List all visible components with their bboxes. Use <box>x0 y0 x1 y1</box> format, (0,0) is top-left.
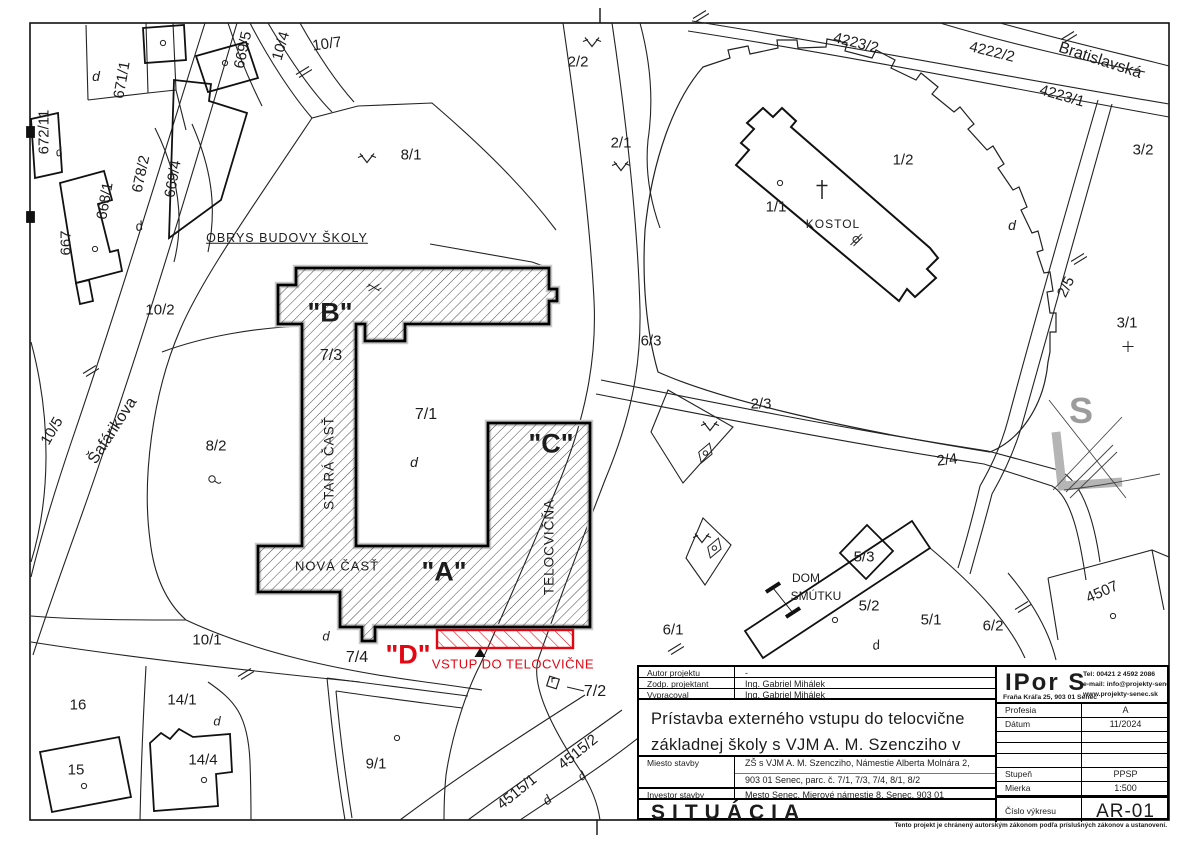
fence-symbol <box>1059 28 1077 49</box>
field-label <box>997 732 1082 743</box>
new-wing-label: NOVÁ ČASŤ <box>295 560 379 573</box>
copyright-note: Tento projekt je chránený autorským záko… <box>637 822 1167 829</box>
circle-symbol <box>1109 607 1117 625</box>
drawing-number-label: Číslo výkresu <box>997 796 1082 822</box>
grass-symbol <box>582 35 602 54</box>
map-label: 6/3 <box>641 334 662 349</box>
flagbox-symbol <box>544 673 562 696</box>
map-label: 6/2 <box>983 619 1004 634</box>
company-contact: Tel: 00421 2 4592 2086 e-mail: info@proj… <box>1083 670 1167 701</box>
map-label: 5/3 <box>854 550 875 565</box>
map-label: 1/2 <box>893 153 914 168</box>
field-label: Dátum <box>997 718 1082 732</box>
field-label: Mierka <box>997 782 1082 796</box>
field-label <box>997 743 1082 754</box>
map-label: 6/1 <box>663 623 684 638</box>
circle-symbol <box>393 729 401 747</box>
circle-tail-symbol <box>207 474 223 492</box>
fence-symbol <box>236 665 254 686</box>
site-value-line1: ZŠ s VJM A. M. Szencziho, Námestie Alber… <box>735 757 995 774</box>
fence-symbol <box>666 640 684 661</box>
company-tel: Tel: 00421 2 4592 2086 <box>1083 670 1167 680</box>
church-cross <box>815 179 830 205</box>
title-block: Autor projektu - Zodp. projektant Ing. G… <box>637 665 1169 820</box>
field-value <box>1082 732 1169 743</box>
company-email: e-mail: info@projekty-senec.sk <box>1083 680 1167 690</box>
map-label: 7/3 <box>320 348 342 364</box>
grass-symbol <box>611 159 631 178</box>
school-outline-callout: OBRYS BUDOVY ŠKOLY <box>206 232 368 245</box>
field-value: A <box>1082 704 1169 718</box>
map-label: 1/1 <box>766 200 787 215</box>
circle-symbol <box>80 777 88 795</box>
drafter-value: Ing. Gabriel Mihálek <box>735 689 997 700</box>
company-web: www.projekty-senec.sk <box>1083 690 1167 700</box>
map-label: d <box>322 630 329 643</box>
map-label: 2/2 <box>568 55 589 70</box>
entrance-callout: VSTUP DO TELOCVIČNE <box>432 658 594 671</box>
investor-label: Investor stavby <box>639 789 735 800</box>
map-label: 2/4 <box>936 451 959 468</box>
designer-value: Ing. Gabriel Mihálek <box>735 678 997 689</box>
survey-x-symbol <box>366 280 383 300</box>
fence-symbol <box>294 63 312 84</box>
fence-symbol <box>81 362 99 383</box>
fold-marks <box>597 8 600 835</box>
circle-symbol <box>200 771 208 789</box>
company-cell: IPor S Fraňa Kráľa 25, 903 01 Senec Tel:… <box>997 667 1167 704</box>
field-value: 1:500 <box>1082 782 1169 796</box>
map-label: d <box>92 69 100 83</box>
planned-entrance-area <box>437 630 573 648</box>
field-value: PPSP <box>1082 768 1169 782</box>
site-value-line2: 903 01 Senec, parc. č. 7/1, 7/3, 7/4, 8/… <box>735 774 995 785</box>
field-label: Stupeň <box>997 768 1082 782</box>
drafter-label: Vypracoval <box>639 689 735 700</box>
author-label: Autor projektu <box>639 667 735 678</box>
map-label: 7/4 <box>346 650 368 666</box>
site-plan-sheet: 669/510/410/7671/1d672/11d678/2669/4668/… <box>0 0 1200 849</box>
field-value <box>1082 754 1169 768</box>
field-label: Profesia <box>997 704 1082 718</box>
entrance-marker <box>475 644 486 662</box>
circle-symbol <box>221 54 229 72</box>
map-label: 9/1 <box>366 757 387 772</box>
map-label: 7/1 <box>415 407 437 423</box>
building-b-label: "B" <box>307 300 352 327</box>
gate-symbol <box>849 232 864 252</box>
grass-symbol <box>357 151 377 170</box>
circle-symbol <box>776 174 784 192</box>
project-title-line2: základnej školy s VJM A. M. Szencziho v … <box>651 733 995 757</box>
map-label: 10/1 <box>192 633 221 648</box>
map-label: 14/4 <box>188 753 217 768</box>
map-label: 10/7 <box>311 35 342 54</box>
map-label: 8/1 <box>401 148 422 163</box>
map-label: d <box>1008 218 1016 232</box>
field-label <box>997 754 1082 768</box>
circle-symbol <box>91 240 99 258</box>
map-label: 8/2 <box>206 439 227 454</box>
circle-symbol <box>831 611 839 629</box>
map-label: d <box>410 455 418 469</box>
map-label: d <box>213 715 220 728</box>
dom-smutku-label-1: DOM <box>792 572 820 584</box>
dom-smutku-label-2: SMÚTKU <box>791 590 842 602</box>
map-label: 2/1 <box>611 136 632 151</box>
gym-label: TELOCVIČŇA <box>542 499 556 595</box>
map-label: 672/11 <box>37 110 52 155</box>
author-value: - <box>735 667 997 678</box>
fence-symbol <box>1013 598 1031 619</box>
plus-symbol <box>1122 340 1135 358</box>
fence-symbol <box>691 7 709 28</box>
field-value <box>1082 743 1169 754</box>
drawing-name: SITUÁCIA <box>639 800 997 822</box>
entrance-d-label: "D" <box>385 642 430 669</box>
grass-symbol <box>700 419 720 438</box>
map-label: 2/3 <box>751 397 772 412</box>
map-label: 10/2 <box>145 303 174 318</box>
map-label: 15 <box>68 763 85 778</box>
project-title: Prístavba externého vstupu do telocvične… <box>639 700 997 757</box>
map-label: 667 <box>59 230 74 255</box>
site-label: Miesto stavby <box>639 757 735 789</box>
church-label: KOSTOL <box>806 218 860 230</box>
map-label: 5/2 <box>859 599 880 614</box>
project-title-line1: Prístavba externého vstupu do telocvične <box>651 707 995 733</box>
map-label: 7/2 <box>584 684 606 700</box>
north-arrow-letter: S <box>1069 393 1093 429</box>
map-label: 14/1 <box>167 693 196 708</box>
investor-value: Mesto Senec, Mierové námestie 8, Senec, … <box>735 789 997 800</box>
map-label: 3/1 <box>1117 316 1138 331</box>
map-label: 3/2 <box>1133 143 1154 158</box>
building-a-label: "A" <box>421 559 466 586</box>
fence-symbol <box>1069 250 1087 271</box>
north-arrow <box>1049 400 1160 498</box>
map-label: 5/1 <box>921 613 942 628</box>
building-c-label: "C" <box>528 431 573 458</box>
circle-symbol <box>159 34 167 52</box>
old-wing-label: STARÁ ČASŤ <box>322 416 336 510</box>
site-value: ZŠ s VJM A. M. Szencziho, Námestie Alber… <box>735 757 997 789</box>
field-value: 11/2024 <box>1082 718 1169 732</box>
map-label: 16 <box>70 698 87 713</box>
designer-label: Zodp. projektant <box>639 678 735 689</box>
drawing-number-value: AR-01 <box>1082 796 1169 822</box>
